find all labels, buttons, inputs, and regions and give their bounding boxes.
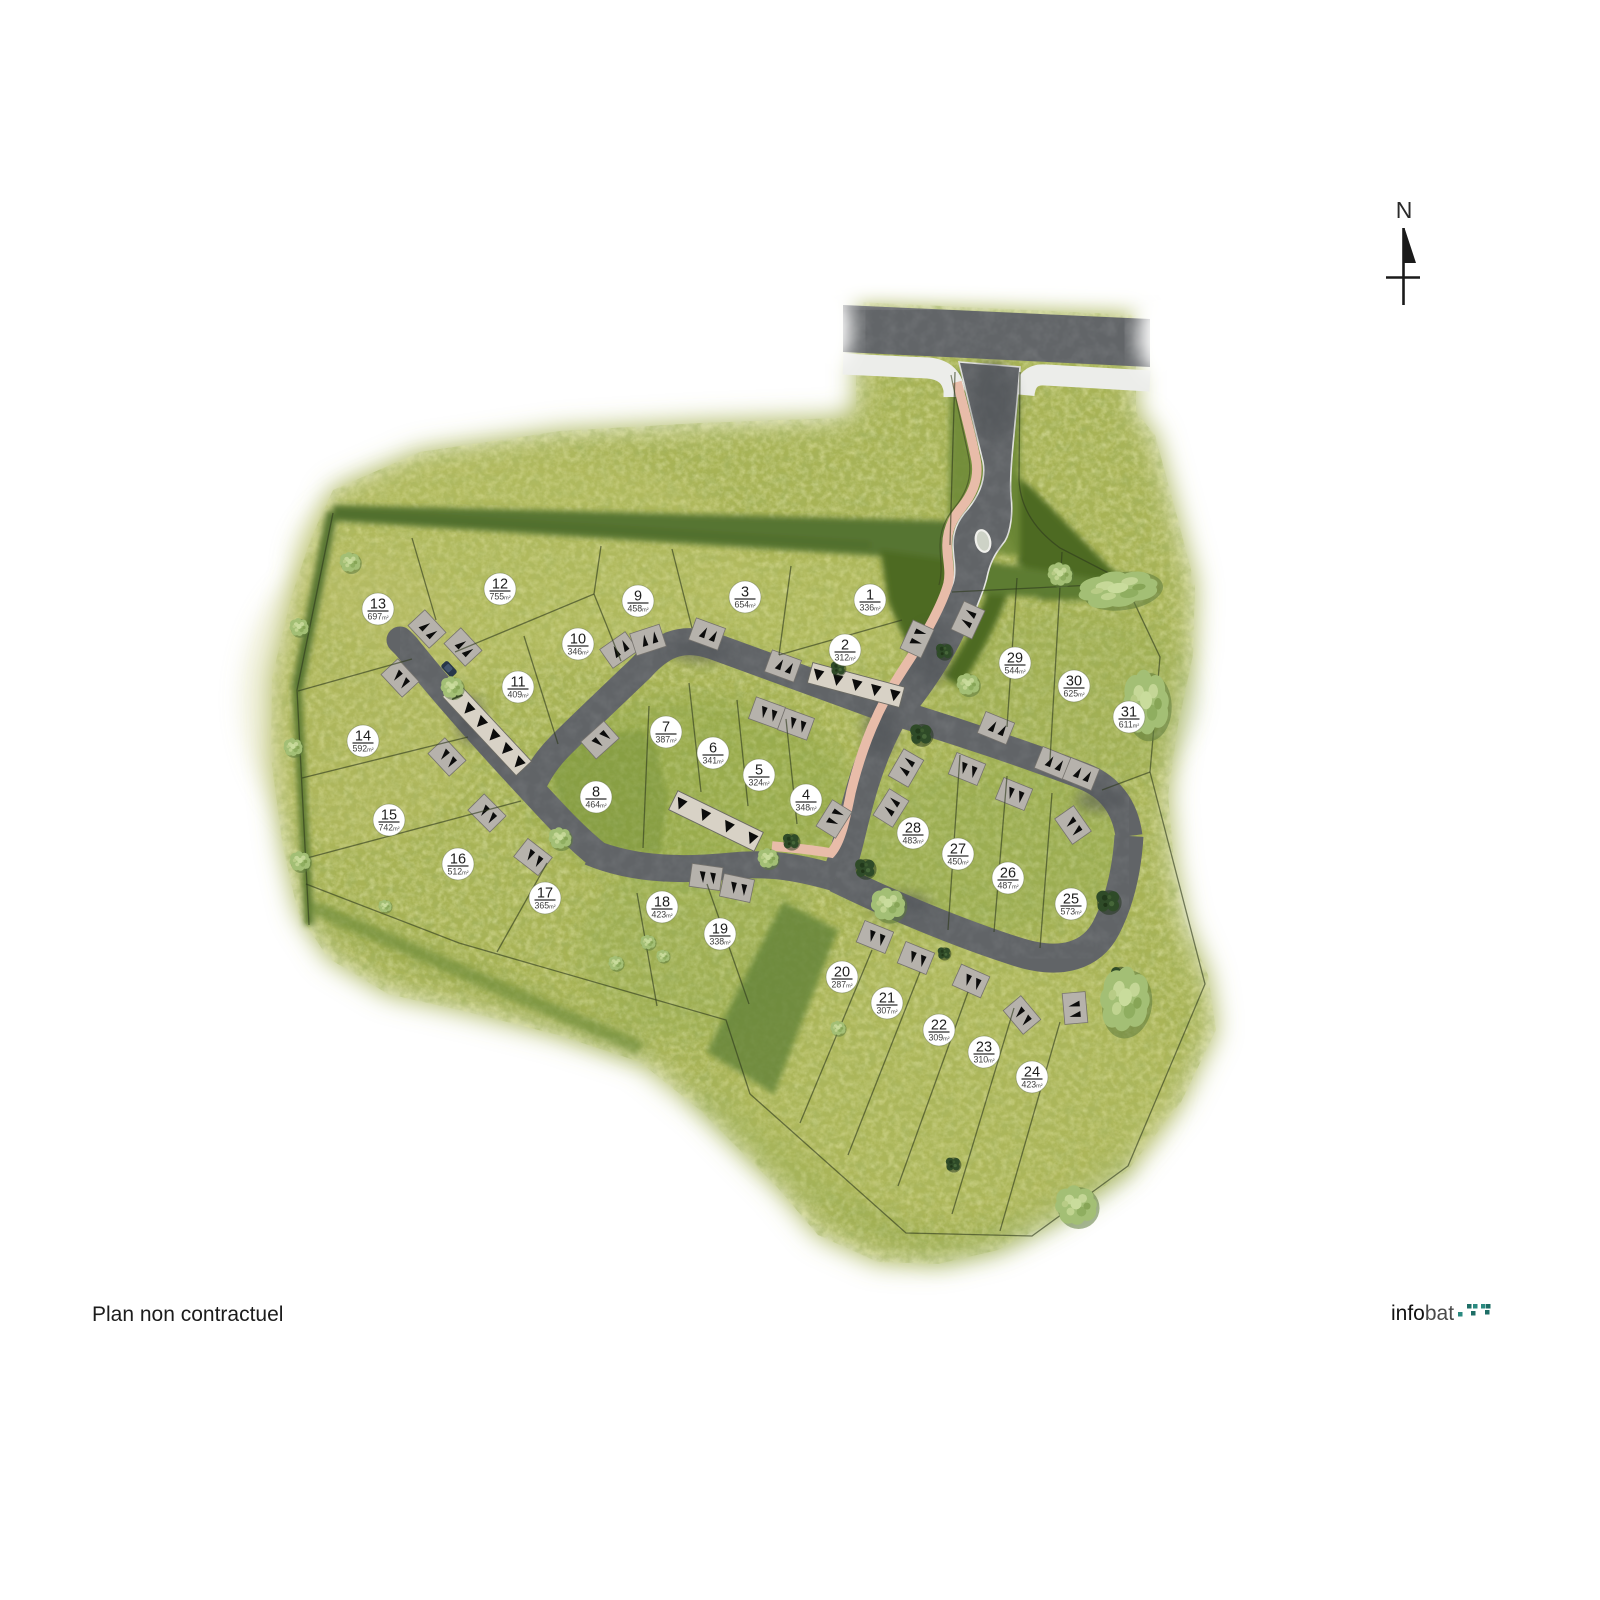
svg-text:N: N bbox=[1396, 197, 1413, 223]
svg-text:7: 7 bbox=[662, 720, 670, 736]
svg-text:22: 22 bbox=[931, 1018, 947, 1034]
svg-text:infobat: infobat bbox=[1391, 1302, 1454, 1325]
svg-text:8: 8 bbox=[592, 785, 600, 801]
svg-text:29: 29 bbox=[1007, 651, 1023, 667]
svg-text:12: 12 bbox=[492, 577, 508, 593]
svg-text:23: 23 bbox=[976, 1040, 992, 1056]
svg-text:16: 16 bbox=[450, 852, 466, 868]
svg-text:11: 11 bbox=[510, 675, 525, 691]
svg-text:3: 3 bbox=[741, 585, 749, 601]
svg-text:30: 30 bbox=[1066, 674, 1082, 690]
svg-text:5: 5 bbox=[755, 763, 763, 779]
svg-text:13: 13 bbox=[370, 597, 386, 613]
svg-text:10: 10 bbox=[570, 632, 586, 648]
svg-text:31: 31 bbox=[1121, 705, 1137, 721]
svg-text:1: 1 bbox=[866, 588, 874, 604]
svg-text:15: 15 bbox=[381, 808, 397, 824]
svg-text:2: 2 bbox=[841, 638, 849, 654]
svg-text:19: 19 bbox=[712, 922, 728, 938]
svg-text:24: 24 bbox=[1024, 1065, 1040, 1081]
svg-text:6: 6 bbox=[709, 741, 717, 757]
svg-text:9: 9 bbox=[634, 589, 642, 605]
svg-text:25: 25 bbox=[1063, 892, 1079, 908]
svg-text:Plan non contractuel: Plan non contractuel bbox=[92, 1303, 283, 1326]
svg-text:21: 21 bbox=[879, 991, 895, 1007]
svg-text:26: 26 bbox=[1000, 866, 1016, 882]
svg-text:28: 28 bbox=[905, 821, 921, 837]
svg-text:14: 14 bbox=[355, 729, 371, 745]
svg-text:20: 20 bbox=[834, 965, 850, 981]
svg-text:27: 27 bbox=[950, 842, 966, 858]
svg-text:4: 4 bbox=[802, 788, 810, 804]
svg-text:18: 18 bbox=[654, 895, 670, 911]
svg-text:17: 17 bbox=[537, 886, 553, 902]
